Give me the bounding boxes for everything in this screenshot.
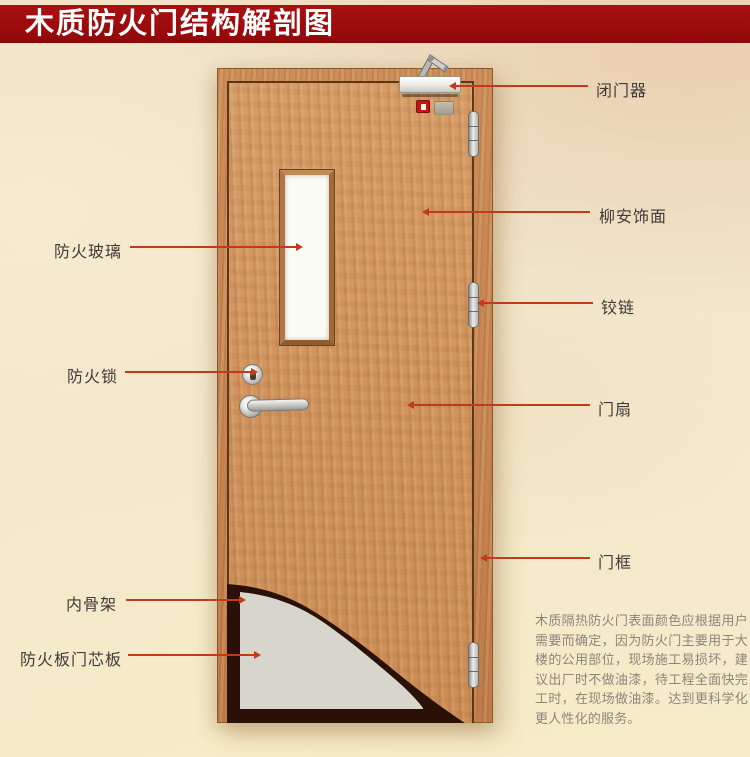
label-fire-board-core: 防火板门芯板 (20, 646, 122, 670)
label-fire-lock: 防火锁 (67, 363, 118, 387)
label-door-closer: 闭门器 (596, 77, 647, 101)
label-door-frame: 门框 (598, 549, 632, 573)
leader-line-door-frame (486, 557, 590, 559)
door-closer-shadow (402, 94, 458, 97)
fire-glass-window-graphic (280, 170, 334, 345)
fire-board-core-graphic (240, 592, 423, 709)
label-lauan-veneer: 柳安饰面 (599, 203, 667, 227)
leader-line-door-closer (455, 85, 588, 87)
leader-line-fire-lock (125, 371, 252, 373)
page-title: 木质防火门结构解剖图 (0, 5, 750, 43)
leader-line-hinge (483, 302, 593, 304)
description-text: 木质隔热防火门表面颜色应根据用户需要而确定，因为防火门主要用于大楼的公用部位，现… (535, 611, 748, 729)
closer-mount-plate-graphic (434, 101, 454, 115)
hinge-top-graphic (468, 111, 479, 157)
alarm-indicator-light (421, 104, 426, 110)
door-handle-graphic (247, 398, 309, 412)
cutaway-section-graphic (227, 578, 474, 723)
label-inner-skeleton: 内骨架 (66, 591, 117, 615)
door-closer-arm-icon (404, 51, 454, 79)
hinge-bottom-graphic (468, 642, 479, 688)
fire-door-diagram: 木质防火门结构解剖图 闭门器 柳安饰面 铰链 门扇 门框 防火玻 (0, 0, 750, 757)
leader-line-fire-board-core (128, 654, 255, 656)
label-hinge: 铰链 (601, 294, 635, 318)
alarm-indicator-icon (416, 100, 430, 113)
leader-line-fire-glass (130, 246, 297, 248)
label-door-leaf: 门扇 (598, 396, 632, 420)
leader-line-inner-skeleton (126, 599, 240, 601)
label-fire-glass: 防火玻璃 (54, 238, 122, 262)
leader-line-door-leaf (413, 404, 590, 406)
leader-line-lauan-veneer (428, 211, 590, 213)
